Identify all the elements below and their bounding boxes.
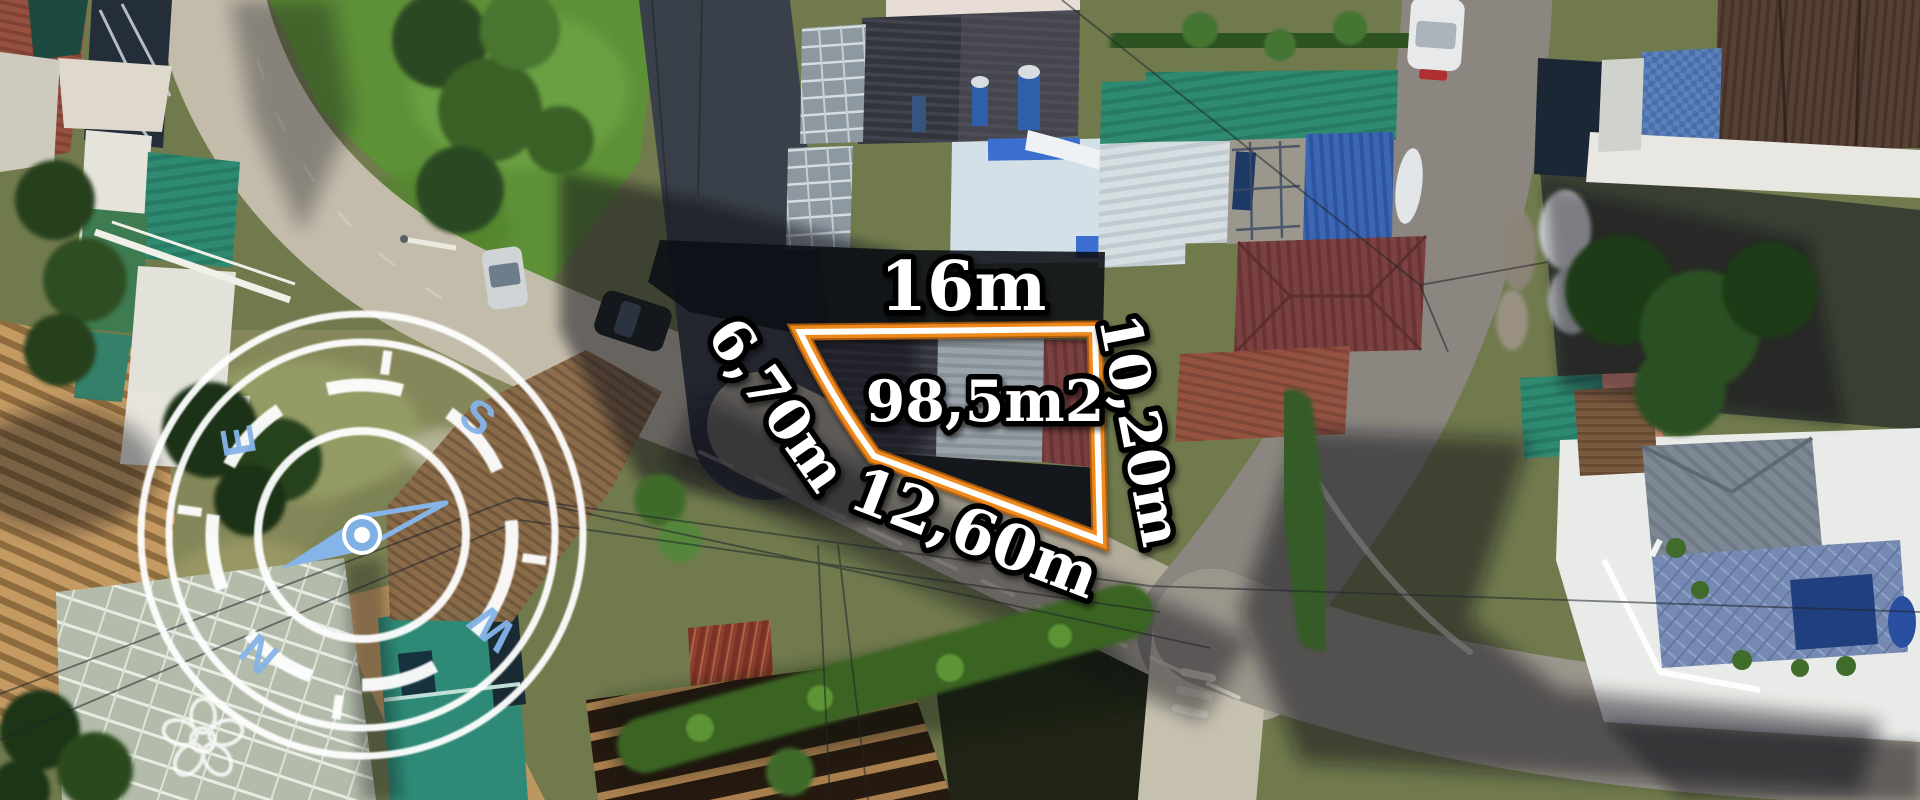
building-blue-corr (1303, 132, 1394, 242)
van-white (481, 246, 529, 311)
skylight-a (800, 24, 866, 144)
building-under-construction (1227, 138, 1306, 244)
building-white-house (0, 52, 60, 172)
building-brown-tile-roof (1175, 346, 1350, 442)
building-white-pad (58, 58, 172, 132)
gray-hip-roof (1642, 438, 1822, 556)
label-area: 98,5m2 (866, 368, 1105, 435)
aerial-scene: E S N W 16m 98,5m2 6,70m 10,20m 12,60m (0, 0, 1920, 800)
building-slate-a (858, 14, 962, 144)
building-maroon-hip-roof (1234, 236, 1426, 354)
label-width-top: 16m (880, 247, 1047, 327)
aerial-property-photo: E S N W 16m 98,5m2 6,70m 10,20m 12,60m (0, 0, 1920, 800)
blue-glass-room (1790, 574, 1878, 650)
